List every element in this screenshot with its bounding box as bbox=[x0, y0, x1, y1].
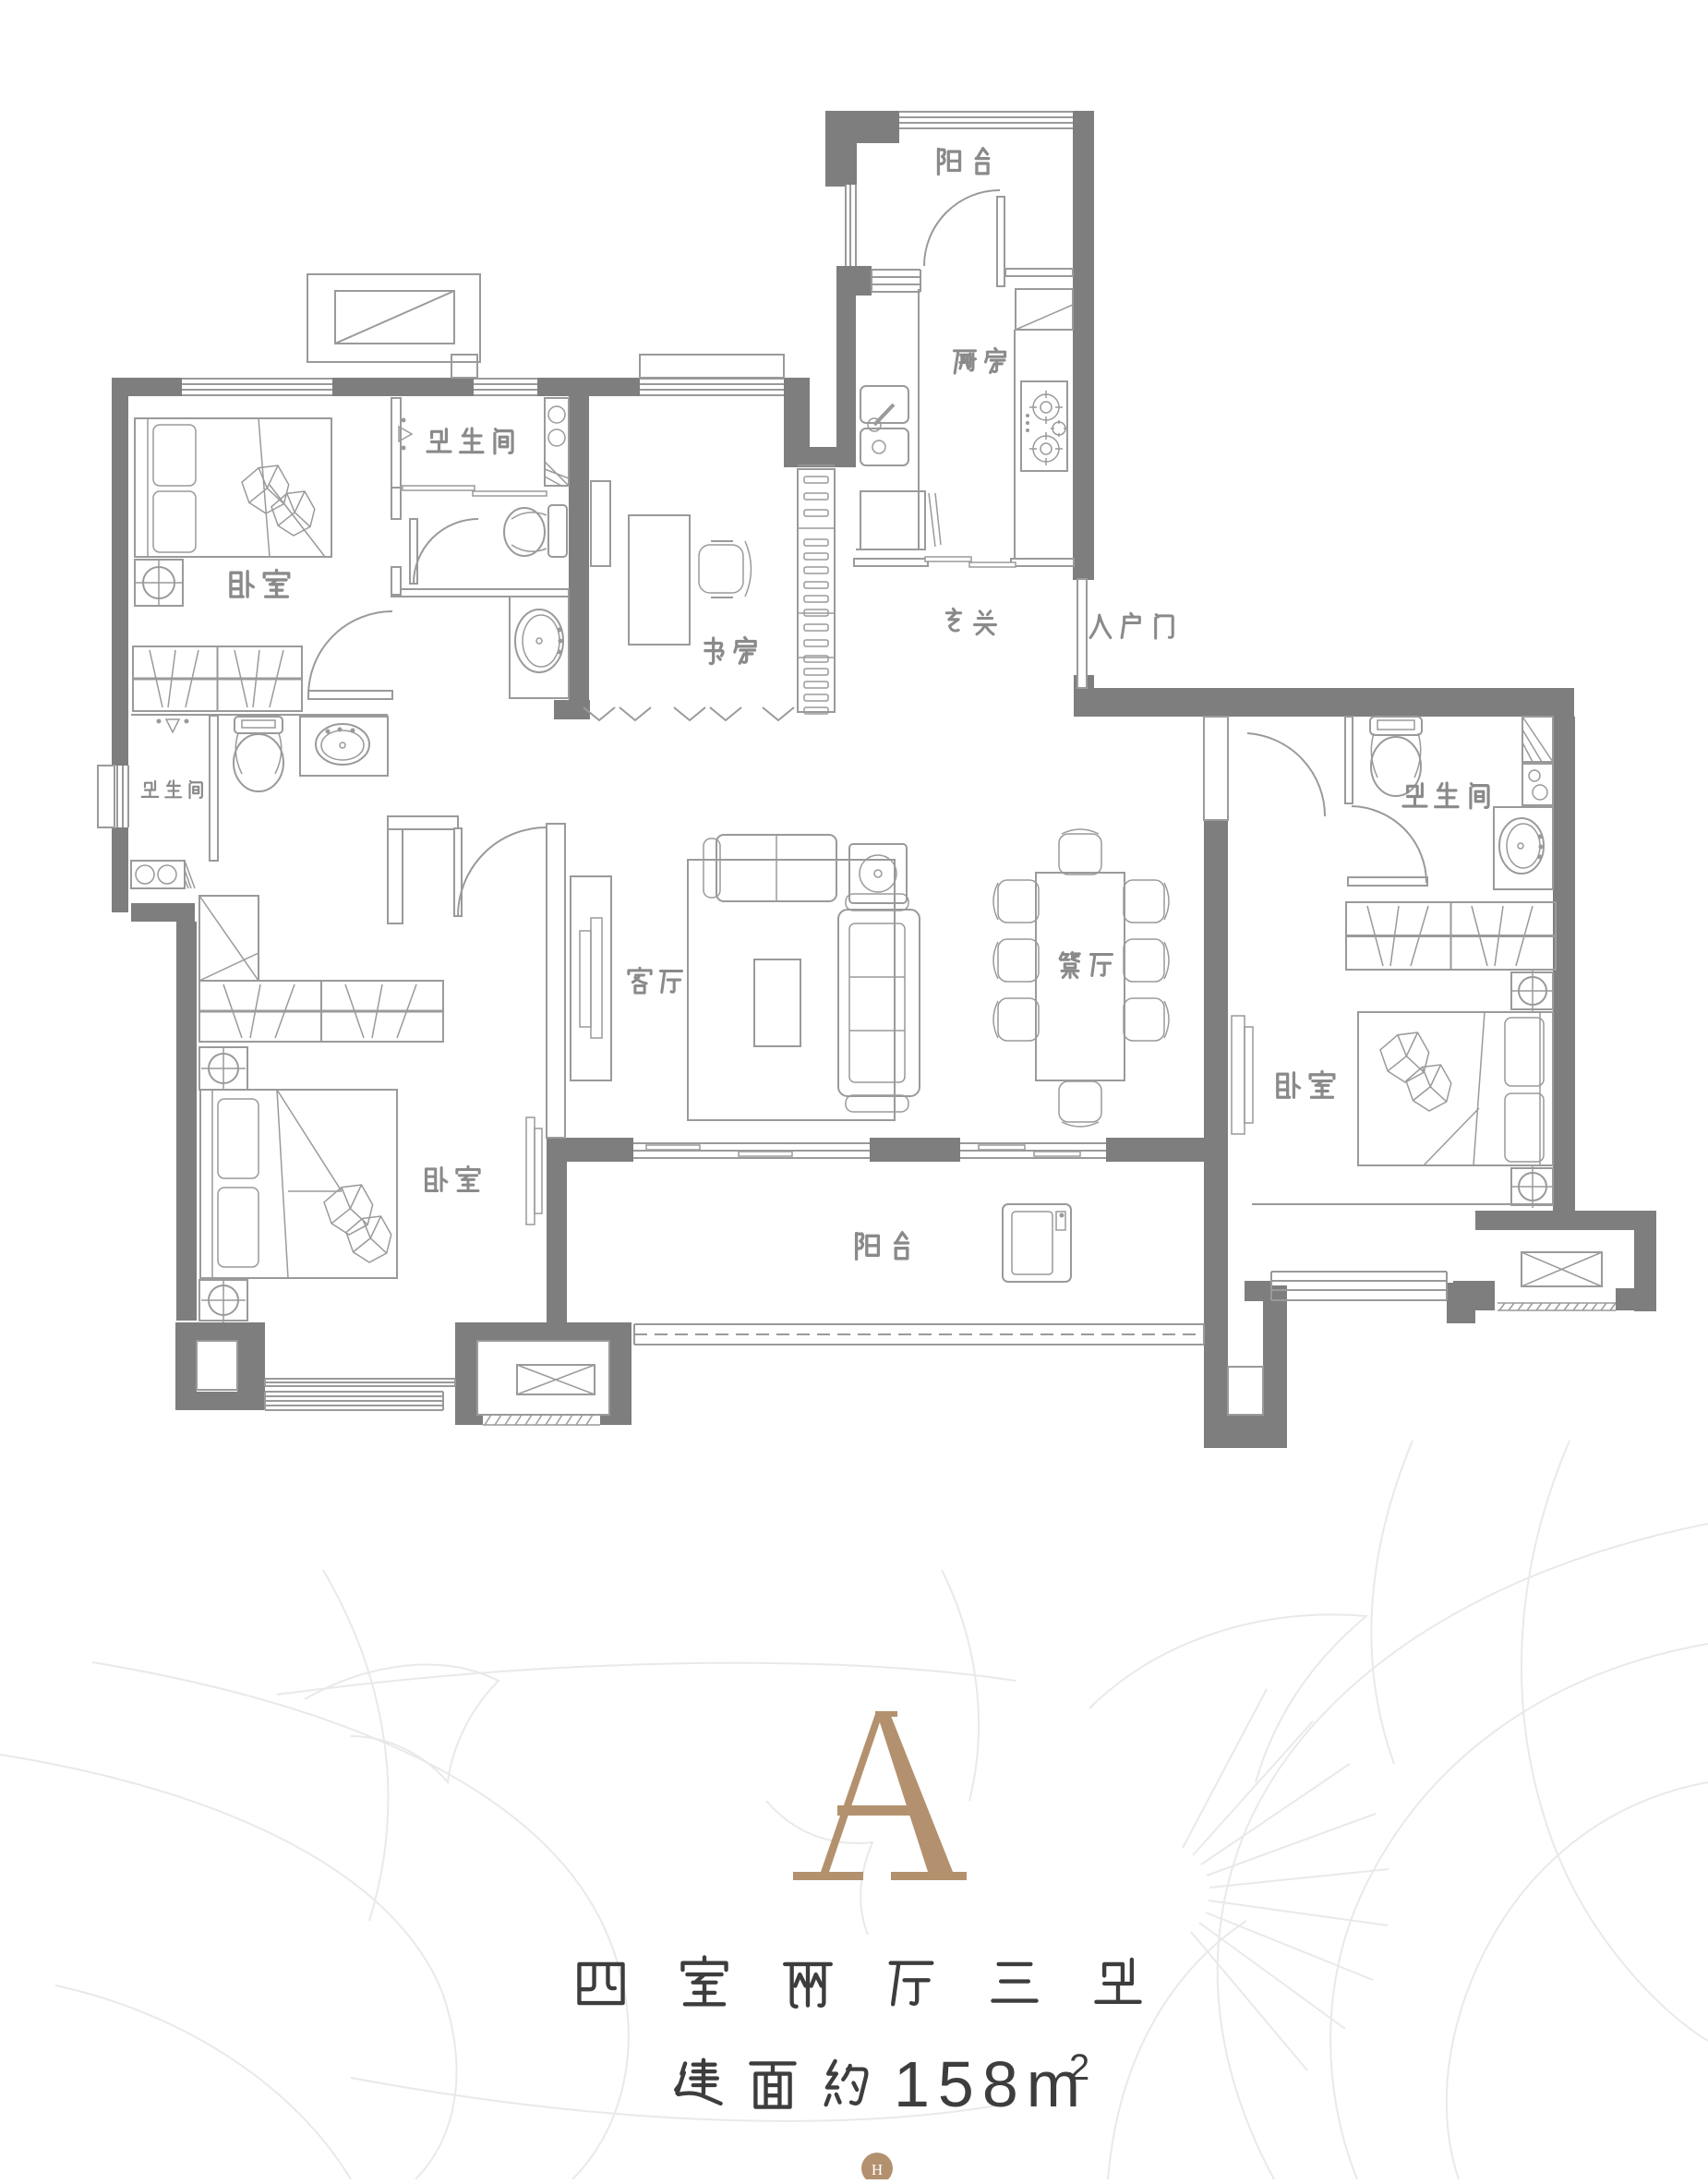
svg-text:158m: 158m bbox=[894, 2048, 1089, 2120]
svg-text:H: H bbox=[872, 2161, 883, 2178]
svg-text:2: 2 bbox=[1069, 2047, 1089, 2088]
